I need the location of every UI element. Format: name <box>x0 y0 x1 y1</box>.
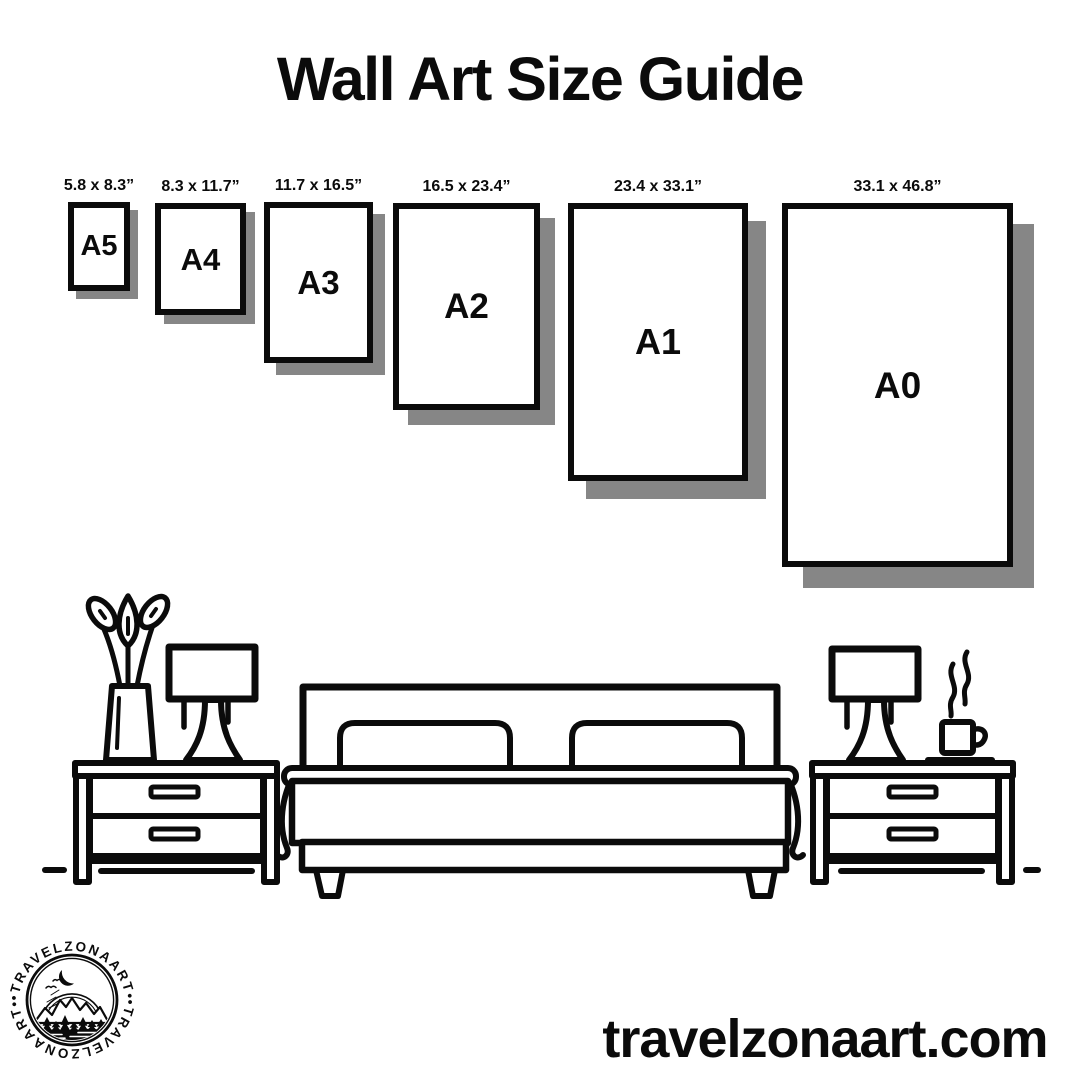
flower-vase-icon <box>83 592 173 760</box>
table-lamp-icon <box>832 649 918 760</box>
paper-size-a5: 5.8 x 8.3” A5 <box>68 202 130 291</box>
bird-icon <box>46 980 61 989</box>
size-code-a2: A2 <box>444 289 489 324</box>
coffee-cup-icon <box>928 652 992 760</box>
nightstand-icon <box>812 763 1013 882</box>
mountains <box>34 998 109 1023</box>
paper-size-a1: 23.4 x 33.1” A1 <box>568 203 748 481</box>
paper-size-a4: 8.3 x 11.7” A4 <box>155 203 246 315</box>
paper-size-a0: 33.1 x 46.8” A0 <box>782 203 1013 567</box>
size-code-a0: A0 <box>874 367 921 404</box>
nightstand-icon <box>75 763 277 882</box>
moon-icon <box>59 970 74 986</box>
logo-text-top-path: •TRAVELZONAART• <box>6 939 138 1002</box>
size-code-a5: A5 <box>80 232 117 261</box>
size-code-a3: A3 <box>297 266 339 299</box>
size-code-a4: A4 <box>181 244 221 275</box>
brand-logo-badge: •TRAVELZONAART• •TRAVELZONAART• <box>2 924 144 1078</box>
wall-art-size-guide-poster: Wall Art Size Guide 5.8 x 8.3” A5 8.3 x … <box>0 0 1080 1080</box>
page-title: Wall Art Size Guide <box>0 44 1080 114</box>
size-code-a1: A1 <box>635 324 681 360</box>
website-url: travelzonaart.com <box>598 1008 1052 1070</box>
logo-text-top: •TRAVELZONAART• <box>6 939 138 1002</box>
paper-size-a2: 16.5 x 23.4” A2 <box>393 203 540 410</box>
size-dims-a0: 33.1 x 46.8” <box>728 178 1067 202</box>
table-lamp-icon <box>169 647 255 760</box>
double-bed-icon <box>277 687 803 896</box>
paper-size-a3: 11.7 x 16.5” A3 <box>264 202 373 363</box>
bedroom-illustration <box>0 590 1080 910</box>
steam-icon <box>950 652 968 716</box>
